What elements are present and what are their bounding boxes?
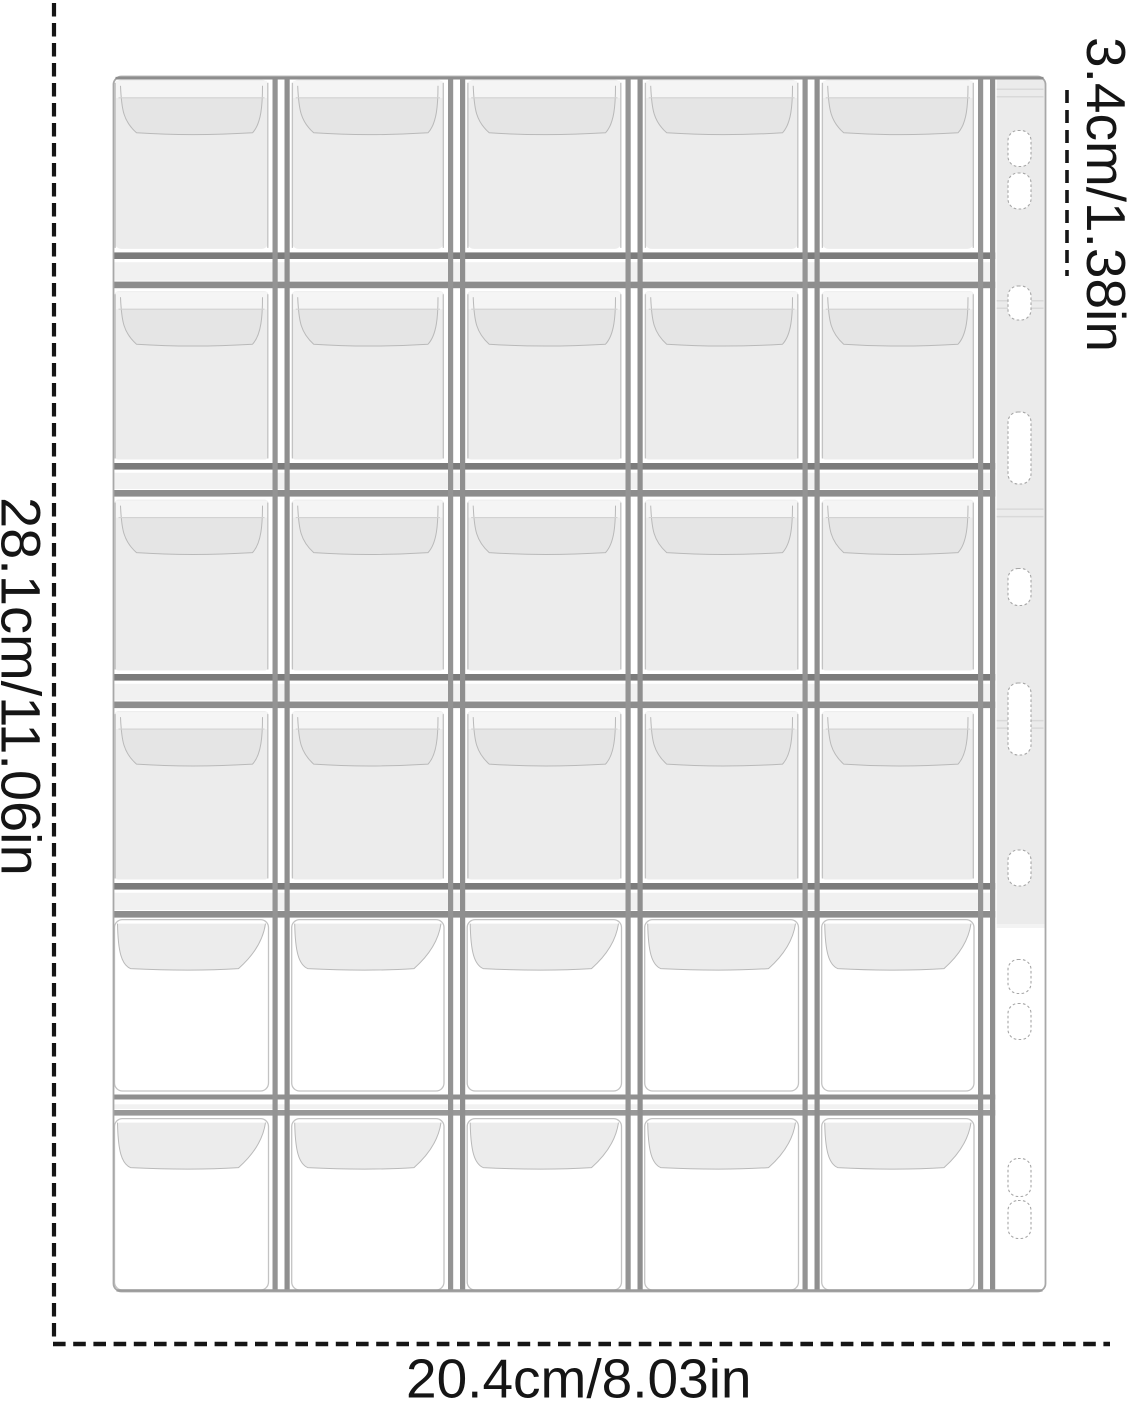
svg-text:20.4cm/8.03in: 20.4cm/8.03in <box>406 1348 752 1400</box>
svg-text:3.4cm/1.38in: 3.4cm/1.38in <box>1075 37 1129 352</box>
svg-text:28.1cm/11.06in: 28.1cm/11.06in <box>0 497 53 876</box>
